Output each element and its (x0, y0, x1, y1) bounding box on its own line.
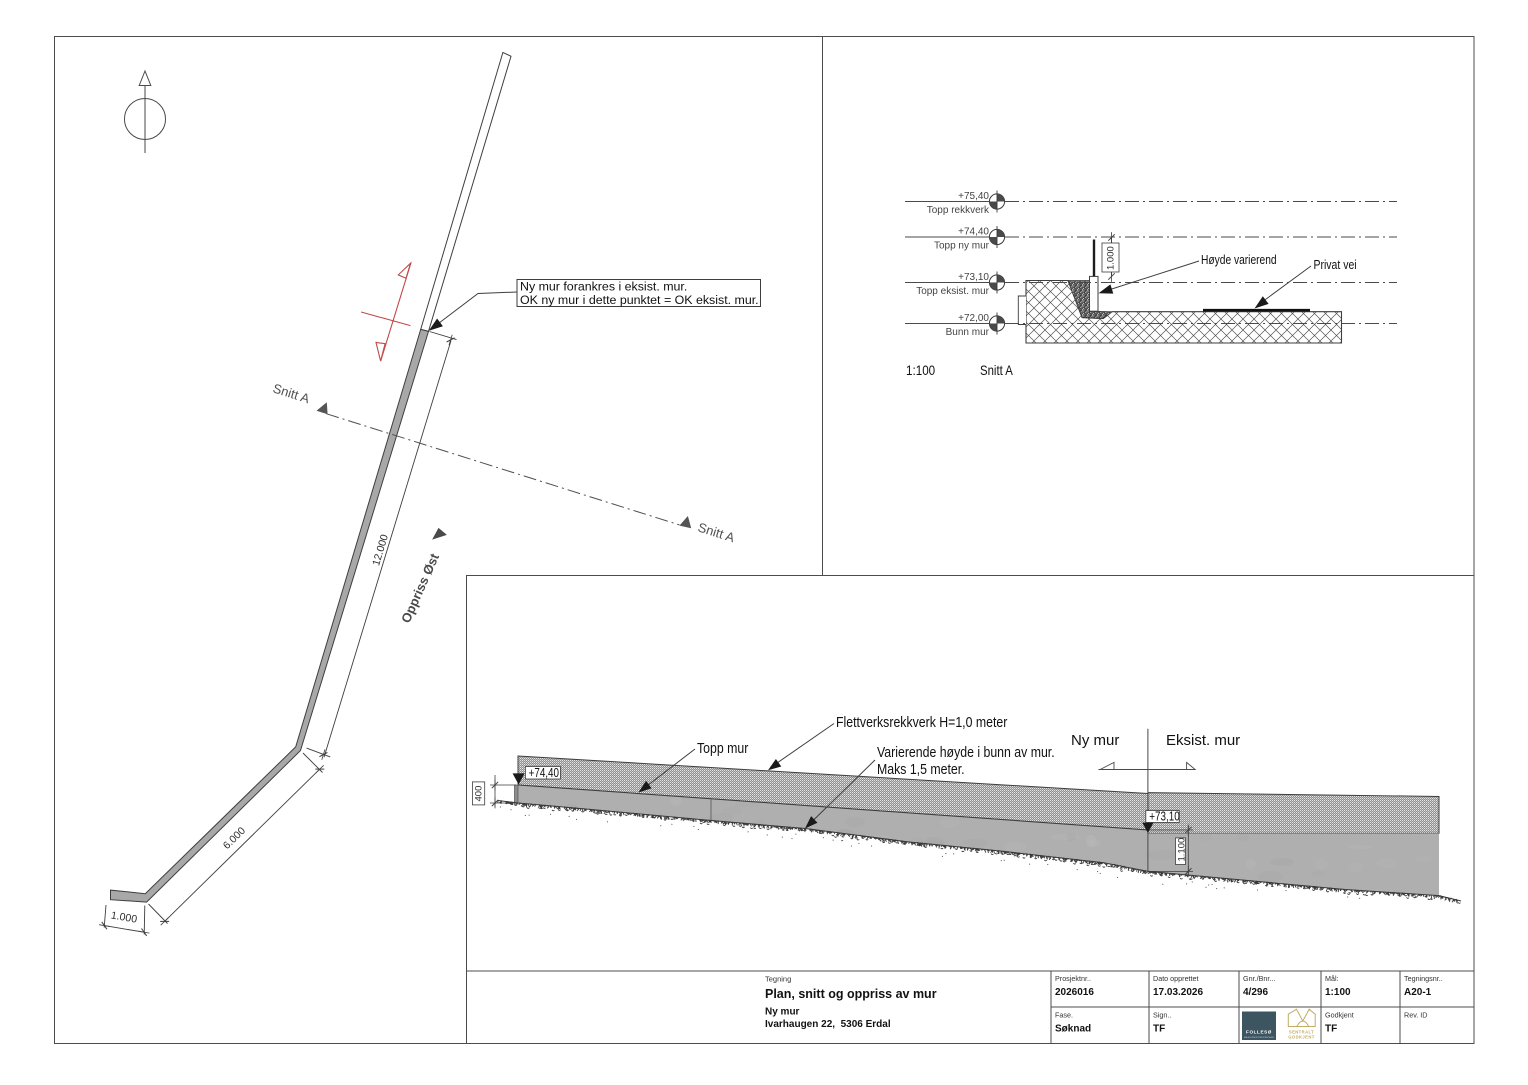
svg-text:+73,10: +73,10 (1149, 810, 1179, 823)
svg-text:Sign..: Sign.. (1153, 1011, 1171, 1020)
svg-text:Topp rekkverk: Topp rekkverk (927, 205, 990, 216)
svg-text:TF: TF (1325, 1024, 1337, 1035)
svg-text:Rev. ID: Rev. ID (1404, 1011, 1427, 1020)
svg-text:Prosjektnr..: Prosjektnr.. (1055, 974, 1091, 983)
svg-text:Ny mur forankres i eksist. mur: Ny mur forankres i eksist. mur. (520, 280, 687, 294)
svg-text:Ny mur: Ny mur (1071, 732, 1119, 749)
svg-text:Høyde varierend: Høyde varierend (1201, 254, 1277, 267)
svg-text:Mål:: Mål: (1325, 974, 1339, 983)
svg-text:Fase.: Fase. (1055, 1011, 1073, 1020)
svg-text:1:100: 1:100 (1325, 987, 1351, 998)
svg-text:+75,40: +75,40 (958, 191, 989, 202)
svg-text:Varierende høyde i bunn av mur: Varierende høyde i bunn av mur. (877, 744, 1055, 760)
svg-text:Godkjent: Godkjent (1325, 1011, 1354, 1020)
svg-text:+74,40: +74,40 (958, 227, 989, 238)
svg-text:Tegning: Tegning (765, 975, 791, 984)
svg-text:Plan, snitt og oppriss av mur: Plan, snitt og oppriss av mur (765, 987, 937, 1001)
svg-text:Tegningsnr..: Tegningsnr.. (1404, 974, 1443, 983)
svg-text:1.000: 1.000 (1106, 246, 1117, 270)
svg-text:A20-1: A20-1 (1404, 987, 1432, 998)
svg-text:1:100: 1:100 (906, 363, 935, 378)
svg-text:MASKINENTREPRENØR: MASKINENTREPRENØR (1244, 1036, 1274, 1039)
svg-text:Dato opprettet: Dato opprettet (1153, 974, 1199, 983)
svg-text:4/296: 4/296 (1243, 987, 1268, 998)
svg-text:Flettverksrekkverk H=1,0 meter: Flettverksrekkverk H=1,0 meter (836, 714, 1008, 730)
svg-text:Søknad: Søknad (1055, 1024, 1091, 1035)
svg-text:Gnr./Bnr...: Gnr./Bnr... (1243, 974, 1275, 983)
svg-text:TF: TF (1153, 1024, 1165, 1035)
svg-text:+72,00: +72,00 (958, 313, 989, 324)
svg-text:Topp ny mur: Topp ny mur (934, 241, 990, 252)
svg-text:+74,40: +74,40 (529, 767, 559, 780)
svg-text:2026016: 2026016 (1055, 987, 1094, 998)
svg-text:FOLLESØ: FOLLESØ (1246, 1030, 1272, 1035)
svg-text:Topp eksist. mur: Topp eksist. mur (916, 286, 989, 297)
svg-text:Ny mur: Ny mur (765, 1007, 800, 1018)
svg-text:Ivarhaugen 22, 5306 Erdal: Ivarhaugen 22, 5306 Erdal (765, 1019, 891, 1030)
svg-text:GODKJENT: GODKJENT (1288, 1035, 1315, 1040)
svg-text:OK ny mur i dette punktet = OK: OK ny mur i dette punktet = OK eksist. m… (520, 293, 759, 307)
svg-text:Privat vei: Privat vei (1314, 258, 1357, 272)
svg-text:Snitt A: Snitt A (980, 363, 1014, 378)
svg-text:1.100: 1.100 (1177, 838, 1188, 862)
svg-text:Maks 1,5 meter.: Maks 1,5 meter. (877, 761, 965, 777)
svg-text:17.03.2026: 17.03.2026 (1153, 987, 1203, 998)
svg-text:400: 400 (474, 786, 485, 802)
svg-text:Bunn mur: Bunn mur (946, 327, 990, 338)
svg-text:Topp mur: Topp mur (697, 740, 749, 756)
svg-text:+73,10: +73,10 (958, 272, 989, 283)
svg-text:Eksist. mur: Eksist. mur (1166, 732, 1240, 749)
